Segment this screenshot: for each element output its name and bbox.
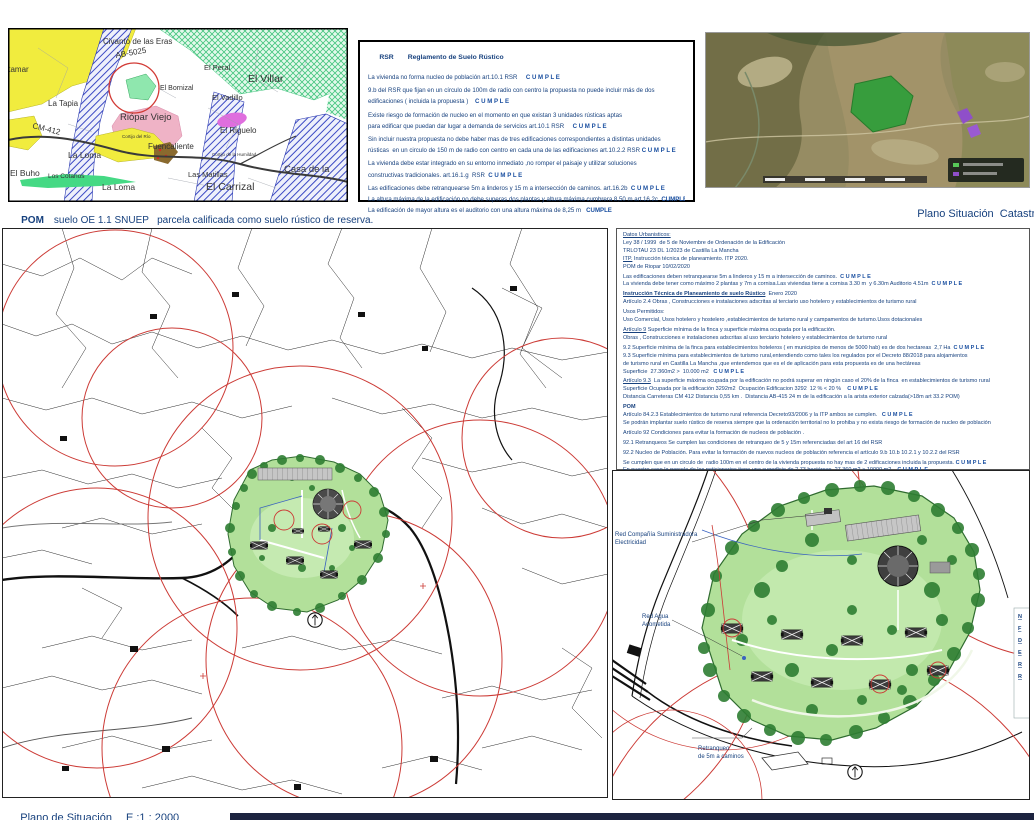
datos-line: 9.2 Superficie mínima de la finca para e… xyxy=(623,345,1023,353)
catastral-caption-text: Plano Situación Catastral xyxy=(917,208,1034,220)
datos-line: Ley 38 / 1999 de 5 de Noviembre de Orden… xyxy=(623,240,1023,248)
pom-zoning-map: Civanto de las Eras AB-5025 Retamar La T… xyxy=(8,28,348,202)
rsr-rule-line: para edificar que puedan dar lugar a dem… xyxy=(368,121,685,132)
rsr-regulations-box: RSRReglamento de Suelo Rústico La vivien… xyxy=(358,40,695,202)
pom-caption-code: POM xyxy=(21,215,44,226)
rsr-rule-line: constructivas tradicionales. art.16.1.g … xyxy=(368,170,685,181)
catastral-caption: Plano Situación Catastral xyxy=(905,196,1034,232)
datos-line: TRLOTAU 23 DL 1/2023 de Castilla La Manc… xyxy=(623,248,1023,256)
building xyxy=(292,529,304,534)
electric-annotation-line2: Electricidad xyxy=(615,540,646,546)
map-label: Las Matillas xyxy=(188,170,228,179)
datos-line: ITP. Instrucción técnica de planeamiento… xyxy=(623,256,1023,264)
datos-line: Las edificaciones deben retranquearse 5m… xyxy=(623,274,1023,282)
map-label: La Loma xyxy=(68,150,101,160)
datos-line: Se cumplen que en un circulo de radio 10… xyxy=(623,460,1023,468)
rsr-rule-line: edificaciones ( incluida la propuesta ) … xyxy=(368,96,685,107)
datos-line: Artículo 2.4 Obras , Construcciones e in… xyxy=(623,299,1023,307)
datos-line: Instrucción Técnica de Planeamiento de s… xyxy=(623,291,1023,299)
datos-line: 9.3 Superficie mínima para establecimien… xyxy=(623,353,1023,361)
plan2000-caption-label: Plano de Situación xyxy=(20,812,112,820)
building xyxy=(320,571,338,579)
plan-sheet: Civanto de las Eras AB-5025 Retamar La T… xyxy=(0,0,1034,820)
rsr-lines: La vivienda no forma nucleo de población… xyxy=(368,72,685,216)
map-label: El Vadillo xyxy=(212,93,243,102)
legend-fragment: R xyxy=(1018,674,1022,680)
building xyxy=(811,678,833,687)
datos-line: Superficie 27.360m2 > 10.000 m2 C U M P … xyxy=(623,369,1023,377)
datos-line: 92.2 Nucleo de Población. Para evitar la… xyxy=(623,450,1023,458)
datos-line: 92.1 Retranqueos Se cumplen las condicio… xyxy=(623,440,1023,448)
rsr-rule-line: La edificación de mayor altura es el aud… xyxy=(368,205,685,216)
map-label: Cortijo del Río xyxy=(122,134,151,139)
rsr-title: RSRReglamento de Suelo Rústico xyxy=(368,47,685,68)
datos-line: Usos Permitidos: xyxy=(623,309,1023,317)
datos-line: Artículo 9 Superficie mínima de la finca… xyxy=(623,327,1023,335)
rsr-rule-line: Las edificaciones debe retranquearse 5m … xyxy=(368,183,685,194)
building xyxy=(354,541,372,549)
datos-line: POM xyxy=(623,404,1023,412)
electric-annotation-line1: Red Compañía Suministradora xyxy=(615,532,698,538)
north-arrow-icon xyxy=(848,765,862,779)
map-label: El Carrizal xyxy=(206,181,254,193)
rsr-title-code: RSR xyxy=(379,54,393,61)
map-label: El Riguelo xyxy=(220,126,257,135)
auditorium xyxy=(313,489,343,519)
plan2000-caption-scale: E :1 : 2000 xyxy=(126,812,179,820)
photo-scale-bar xyxy=(763,176,927,183)
map-label: Civanto de las Eras xyxy=(103,37,172,46)
datos-line: Datos Urbanisticos: xyxy=(623,232,1023,240)
datos-line: Artículo 9.3 La superficie máxima ocupad… xyxy=(623,378,1023,386)
legend-box: N F D E R R xyxy=(1014,608,1030,718)
building xyxy=(751,672,773,681)
legend-fragment: D xyxy=(1018,638,1022,644)
map-label: Cortijo de la Humildad xyxy=(212,152,257,157)
rsr-rule-line: 9.b del RSR que fijan en un círculo de 1… xyxy=(368,85,685,96)
parking-area xyxy=(258,468,332,480)
building xyxy=(318,527,330,532)
map-label: Casa de la xyxy=(284,164,330,175)
rsr-rule-line: La altura máxima de la edificación no de… xyxy=(368,194,685,205)
legend-fragment: E xyxy=(1018,650,1022,656)
rsr-rule-line: rústicas en un circulo de 150 m de radio… xyxy=(368,145,685,156)
bottom-title-block-edge xyxy=(230,813,1034,820)
setback-annotation-line2: de 5m a caminos xyxy=(698,754,744,760)
building xyxy=(286,557,304,565)
datos-line: Uso Comercial, Usos hotelero y hostelero… xyxy=(623,317,1023,325)
rsr-rule-line: Sin incluir nuestra propuesta no debe ha… xyxy=(368,134,685,145)
map-label: La Tapia xyxy=(48,99,79,108)
rsr-title-text: Reglamento de Suelo Rústico xyxy=(408,54,504,61)
rsr-rule-line: La vivienda no forma nucleo de población… xyxy=(368,72,685,83)
map-label: El Villar xyxy=(248,73,284,85)
building xyxy=(905,628,927,637)
map-label: Riópar Viejo xyxy=(120,112,172,123)
setback-annotation-line1: Retranqueo xyxy=(698,746,730,752)
pom-caption-text: suelo OE 1.1 SNUEP parcela calificada co… xyxy=(54,215,373,226)
datos-line: Distancia Carreteras CM 412 Distancia 0,… xyxy=(623,394,1023,402)
map-label: Fuencaliente xyxy=(148,142,194,151)
building xyxy=(250,542,268,550)
map-label: Retamar xyxy=(8,65,29,74)
datos-line: Obras , Construcciones e instalaciones a… xyxy=(623,335,1023,343)
datos-line: POM de Riopar 10/02/2020 xyxy=(623,264,1023,272)
catastral-aerial-photo xyxy=(705,32,1030,188)
datos-line: Artículo 92 Condiciones para evitar la f… xyxy=(623,430,1023,438)
datos-line: La vivienda debe tener como máximo 2 pla… xyxy=(623,281,1023,289)
datos-line: de turismo rural en Castilla La Mancha ,… xyxy=(623,361,1023,369)
water-annotation-line1: Red Agua xyxy=(642,614,669,620)
legend-fragment: N xyxy=(1018,614,1022,620)
datos-line: Artículo 84.2.3 Establecimientos de turi… xyxy=(623,412,1023,420)
rsr-rule-line: La vivienda debe estar integrado en su e… xyxy=(368,158,685,169)
map-label: El Buho xyxy=(10,168,40,178)
map-label: El Peral xyxy=(204,63,231,72)
building xyxy=(781,630,803,639)
auditorium xyxy=(878,546,918,586)
datos-line: Se podrán implantar suelo rústico de res… xyxy=(623,420,1023,428)
datos-urbanisticos-box: Datos Urbanisticos:Ley 38 / 1999 de 5 de… xyxy=(616,228,1030,470)
north-arrow-icon xyxy=(308,613,322,627)
water-annotation-line2: Acometida xyxy=(642,622,671,628)
map-label: La Loma xyxy=(102,182,135,192)
datos-lines: Datos Urbanisticos:Ley 38 / 1999 de 5 de… xyxy=(623,232,1023,475)
legend-fragment: R xyxy=(1018,662,1022,668)
map-label: Los Cotanos xyxy=(48,173,85,180)
plan2000-caption: Plano de SituaciónE :1 : 2000 xyxy=(8,800,179,820)
building xyxy=(841,636,863,645)
site-plan-2000 xyxy=(2,228,608,798)
site-plan-1000: Red Compañía Suministradora Electricidad… xyxy=(612,470,1030,800)
map-label: El Bornizal xyxy=(160,85,194,92)
photo-legend-box xyxy=(948,158,1024,182)
rsr-rule-line: Existe riesgo de formación de nucleo en … xyxy=(368,110,685,121)
datos-line: Superficie Ocupada por la edificación 32… xyxy=(623,386,1023,394)
